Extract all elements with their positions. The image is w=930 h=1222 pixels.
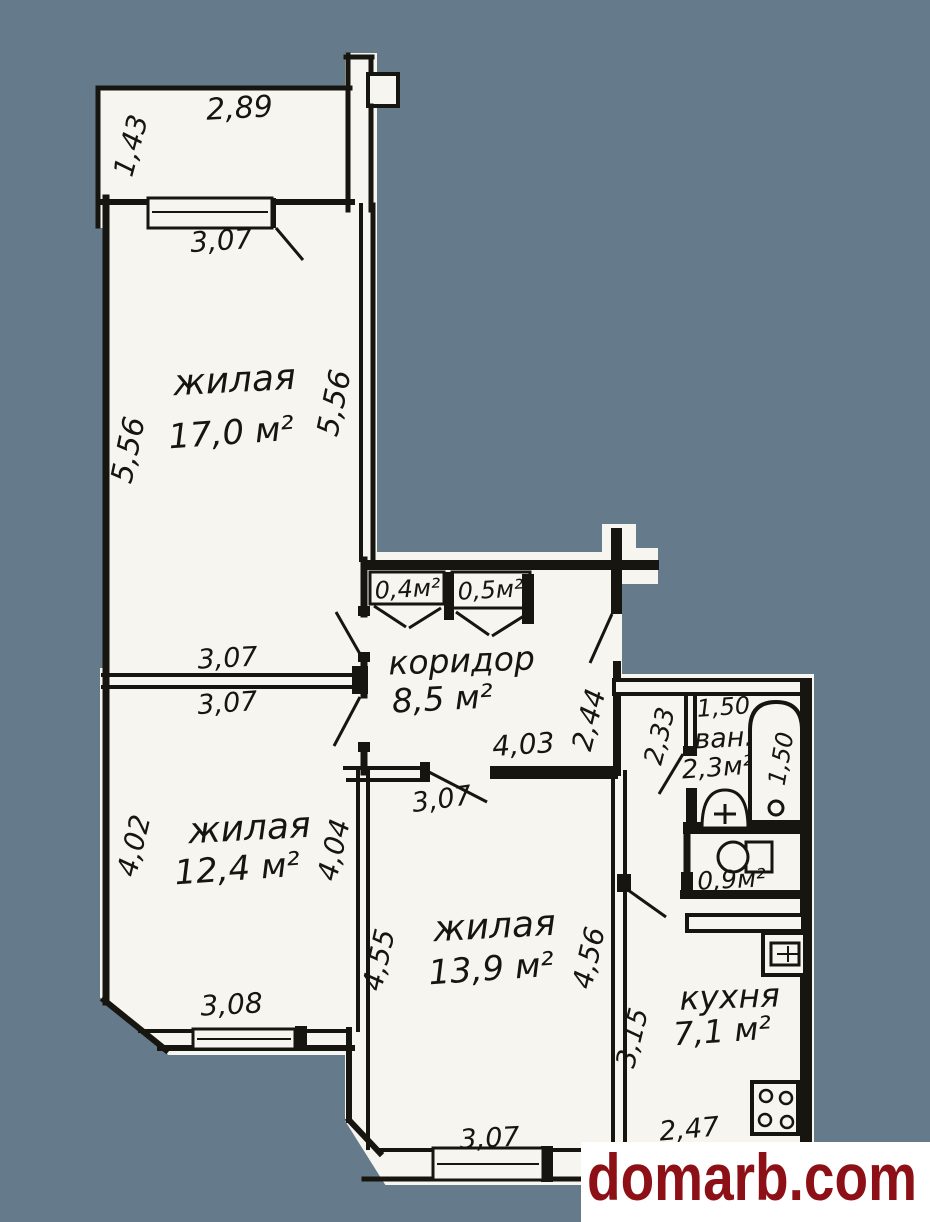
room1-label: жилая xyxy=(171,357,297,404)
stove-icon xyxy=(752,1082,798,1134)
watermark-text: domarb.com xyxy=(587,1140,917,1214)
corridor-label: коридор xyxy=(388,638,536,682)
kitchen-area: 7,1 м² xyxy=(672,1009,773,1054)
corridor-closet-right-area: 0,5м² xyxy=(457,574,525,605)
room1-dim-bottom: 3,07 xyxy=(197,641,259,675)
room3-dim-top: 4,03 xyxy=(491,726,555,763)
room3-dim-bottom: 3,07 xyxy=(459,1121,521,1155)
room2-dim-bottom: 3,08 xyxy=(200,986,264,1022)
room2-dim-top: 3,07 xyxy=(196,686,258,721)
watermark: domarb.com xyxy=(581,1140,930,1222)
room2-window xyxy=(193,1029,295,1049)
toilet-area: 0,9м² xyxy=(697,863,767,896)
room1-dim-window: 3,07 xyxy=(189,222,254,259)
balcony-window xyxy=(148,198,272,228)
bathroom-dim-top: 1,50 xyxy=(696,691,751,723)
room3-label: жилая xyxy=(431,903,557,950)
floor-plan-scan: 2,89 1,43 3,07 жилая 17,0 м² 5,56 5,56 3… xyxy=(0,0,930,1222)
kitchen-sink-icon xyxy=(763,933,805,975)
corridor-area: 8,5 м² xyxy=(391,676,494,720)
bathroom-area: 2,3м² xyxy=(681,751,754,786)
balcony-dim-top: 2,89 xyxy=(205,89,274,127)
floor-plan-svg: 2,89 1,43 3,07 жилая 17,0 м² 5,56 5,56 3… xyxy=(0,0,930,1222)
corridor-closet-left-area: 0,4м² xyxy=(374,573,442,604)
